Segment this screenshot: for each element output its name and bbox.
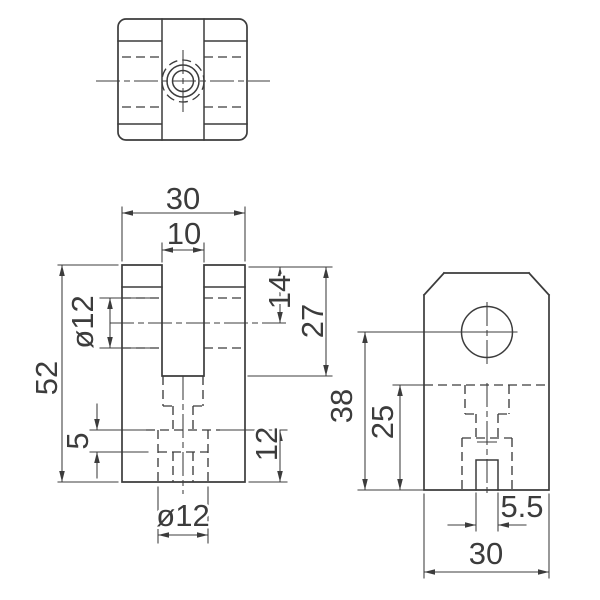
- dim-side-slot-floor-from-bottom: 25: [365, 405, 400, 439]
- side-view: 38 25 5.5 30: [324, 273, 549, 578]
- top-view-centerlines: [96, 50, 270, 113]
- dim-front-slot-depth: 27: [295, 304, 330, 338]
- dim-front-bottom-hole-depth: 12: [249, 427, 284, 461]
- technical-drawing-page: 30 10 52 ø12 14 27 5 12 ø12 38 25 5.5 30: [0, 0, 600, 600]
- dim-front-overall-width: 30: [166, 181, 200, 216]
- dimension-arrows-side: [362, 332, 549, 575]
- front-view: 30 10 52 ø12 14 27 5 12 ø12: [29, 181, 332, 543]
- dim-lines-side: [358, 332, 549, 578]
- top-view: [96, 19, 270, 140]
- dim-front-slot-width: 10: [167, 216, 201, 251]
- dim-side-hole-axis-from-bottom: 38: [324, 389, 359, 423]
- dim-front-cross-hole-diameter: ø12: [65, 295, 100, 348]
- dim-front-overall-height: 52: [29, 361, 64, 395]
- dim-side-bottom-slot-width: 5.5: [500, 489, 543, 524]
- dim-lines-front: [58, 207, 332, 543]
- dim-front-step-height: 5: [60, 432, 95, 449]
- side-view-centerlines: [477, 302, 497, 497]
- dim-front-bottom-hole-diameter: ø12: [156, 498, 209, 533]
- dimension-arrows-front: [59, 210, 329, 538]
- technical-drawing: 30 10 52 ø12 14 27 5 12 ø12 38 25 5.5 30: [0, 0, 600, 600]
- dim-side-overall-depth: 30: [469, 536, 503, 571]
- dim-front-hole-axis-from-top: 14: [262, 275, 297, 309]
